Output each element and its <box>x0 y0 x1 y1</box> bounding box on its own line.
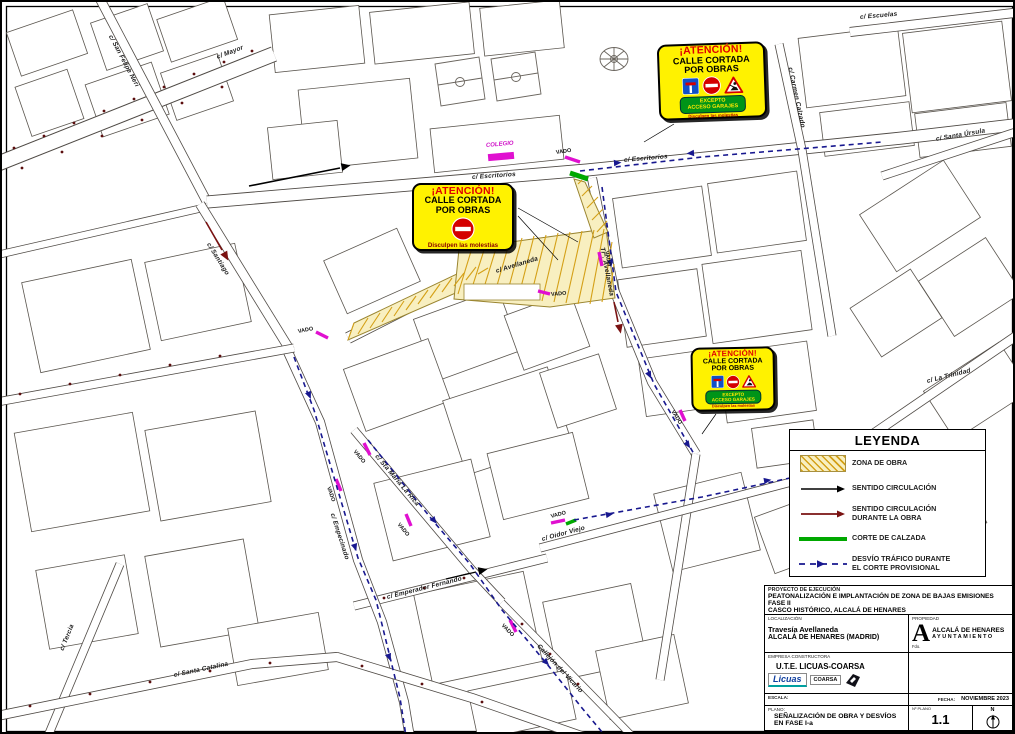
contractor-label: EMPRESA CONSTRUCTORA <box>768 654 905 660</box>
excepto-badge: EXCEPTO ACCESO GARAJES <box>706 389 761 404</box>
roadwork-sign-center: ¡ATENCIÓN! CALLE CORTADA POR OBRAS Discu… <box>412 183 514 251</box>
dead-end-icon <box>681 78 699 96</box>
detour-dash-sample <box>797 559 849 569</box>
owner-line1: ALCALÁ DE HENARES <box>932 627 1004 634</box>
contractor-name: U.T.E. LICUAS-COARSA <box>776 662 905 671</box>
no-entry-icon <box>725 375 739 389</box>
north-indicator: N <box>972 706 1012 730</box>
plaza-and-courts <box>435 48 628 107</box>
legend-label: SENTIDO CIRCULACIÓN <box>852 504 936 513</box>
plan-sheet: c/ Mayor c/ San Felipe Neri c/ Escritori… <box>0 0 1015 734</box>
contractor-cell: EMPRESA CONSTRUCTORA U.T.E. LICUAS-COARS… <box>765 653 908 692</box>
project-line2: CASCO HISTÓRICO, ALCALÁ DE HENARES <box>768 607 1009 614</box>
plan-title-cell: PLANO: SEÑALIZACIÓN DE OBRA Y DESVÍOS EN… <box>765 706 908 730</box>
legend-item-road-closure: CORTE DE CALZADA <box>790 526 985 551</box>
green-line-sample <box>799 537 847 541</box>
project-line1: PEATONALIZACIÓN E IMPLANTACIÓN DE ZONA D… <box>768 593 1009 607</box>
legend-item-detour: DESVÍO TRÁFICO DURANTE EL CORTE PROVISIO… <box>790 551 985 576</box>
location-cell: LOCALIZACIÓN Travesía Avellaneda ALCALÁ … <box>765 615 908 652</box>
project-title: PROYECTO DE EJECUCIÓN PEATONALIZACIÓN E … <box>765 586 1012 614</box>
coarsa-cube-logo <box>844 673 862 688</box>
plan-number: 1.1 <box>912 712 969 727</box>
sign-title-line2: POR OBRAS <box>712 365 755 373</box>
roadwork-sign-right: ¡ATENCIÓN! CALLE CORTADA POR OBRAS EXCEP… <box>690 346 775 411</box>
legend-title: LEYENDA <box>790 430 985 451</box>
apology-text: Disculpen las molestias <box>712 405 755 410</box>
legend-item-circulation: SENTIDO CIRCULACIÓN <box>790 476 985 501</box>
location-line1: Travesía Avellaneda <box>768 625 905 634</box>
no-entry-icon <box>701 76 721 96</box>
date-label: FECHA: <box>938 697 955 703</box>
excepto-line2: ACCESO GARAJES <box>712 397 755 403</box>
contractor-logos: Licuas COARSA <box>768 673 905 688</box>
empty-cell <box>908 653 1012 692</box>
dead-end-icon <box>710 375 723 388</box>
location-label: LOCALIZACIÓN <box>768 616 905 622</box>
owner-cell: PROPIEDAD A ALCALÁ DE HENARES AYUNTAMIEN… <box>908 615 1012 652</box>
plan-line2: EN FASE I-a <box>774 720 905 727</box>
legend-label: ZONA DE OBRA <box>852 459 907 468</box>
plan-line1: SEÑALIZACIÓN DE OBRA Y DESVÍOS <box>774 713 905 720</box>
work-zone-inner-block <box>464 284 540 300</box>
legend-item-work-zone: ZONA DE OBRA <box>790 451 985 476</box>
maroon-arrow-sample <box>799 509 847 519</box>
apology-text: Disculpen las molestias <box>428 243 498 249</box>
roadworks-icon <box>741 375 755 388</box>
plan-number-cell: Nº PLANO 1.1 <box>908 706 972 730</box>
scale-label: ESCALA: <box>768 695 905 701</box>
no-entry-icon <box>451 217 475 241</box>
title-block: PROYECTO DE EJECUCIÓN PEATONALIZACIÓN E … <box>764 585 1013 731</box>
work-zone-swatch <box>800 455 846 472</box>
legend-item-circulation-during-work: SENTIDO CIRCULACIÓN DURANTE LA OBRA <box>790 501 985 526</box>
licuas-logo: Licuas <box>768 673 807 687</box>
owner-line2: AYUNTAMIENTO <box>932 634 1004 640</box>
sign-title-line2: POR OBRAS <box>684 63 739 75</box>
excepto-line2: ACCESO GARAJES <box>688 104 739 112</box>
legend-label: DESVÍO TRÁFICO DURANTE <box>852 554 950 563</box>
ayuntamiento-logo-a: A <box>912 623 930 644</box>
legend-label: DURANTE LA OBRA <box>852 513 922 522</box>
legend-label: EL CORTE PROVISIONAL <box>852 563 940 572</box>
scale-cell: ESCALA: <box>765 694 908 705</box>
date-value: NOVIEMBRE 2023 <box>961 696 1009 702</box>
sign-title-line2: POR OBRAS <box>436 205 491 215</box>
legend-label: CORTE DE CALZADA <box>852 534 926 543</box>
ayuntamiento-logo: A ALCALÁ DE HENARES AYUNTAMIENTO <box>912 623 1009 644</box>
apology-text: Disculpen las molestias <box>688 113 738 119</box>
roadwork-sign-top: ¡ATENCIÓN! CALLE CORTADA POR OBRAS EXCEP… <box>657 41 768 121</box>
compass-icon <box>985 713 1001 729</box>
roadworks-icon <box>723 76 743 94</box>
coarsa-logo: COARSA <box>810 675 842 685</box>
location-line2: ALCALÁ DE HENARES (MADRID) <box>768 634 905 641</box>
legend-label: SENTIDO CIRCULACIÓN <box>852 484 936 493</box>
legend: LEYENDA ZONA DE OBRA SENTIDO CIRCULACIÓN… <box>789 429 986 577</box>
excepto-badge: EXCEPTO ACCESO GARAJES <box>679 95 746 113</box>
date-cell: FECHA: NOVIEMBRE 2023 <box>908 694 1012 705</box>
black-arrow-sample <box>799 484 847 494</box>
